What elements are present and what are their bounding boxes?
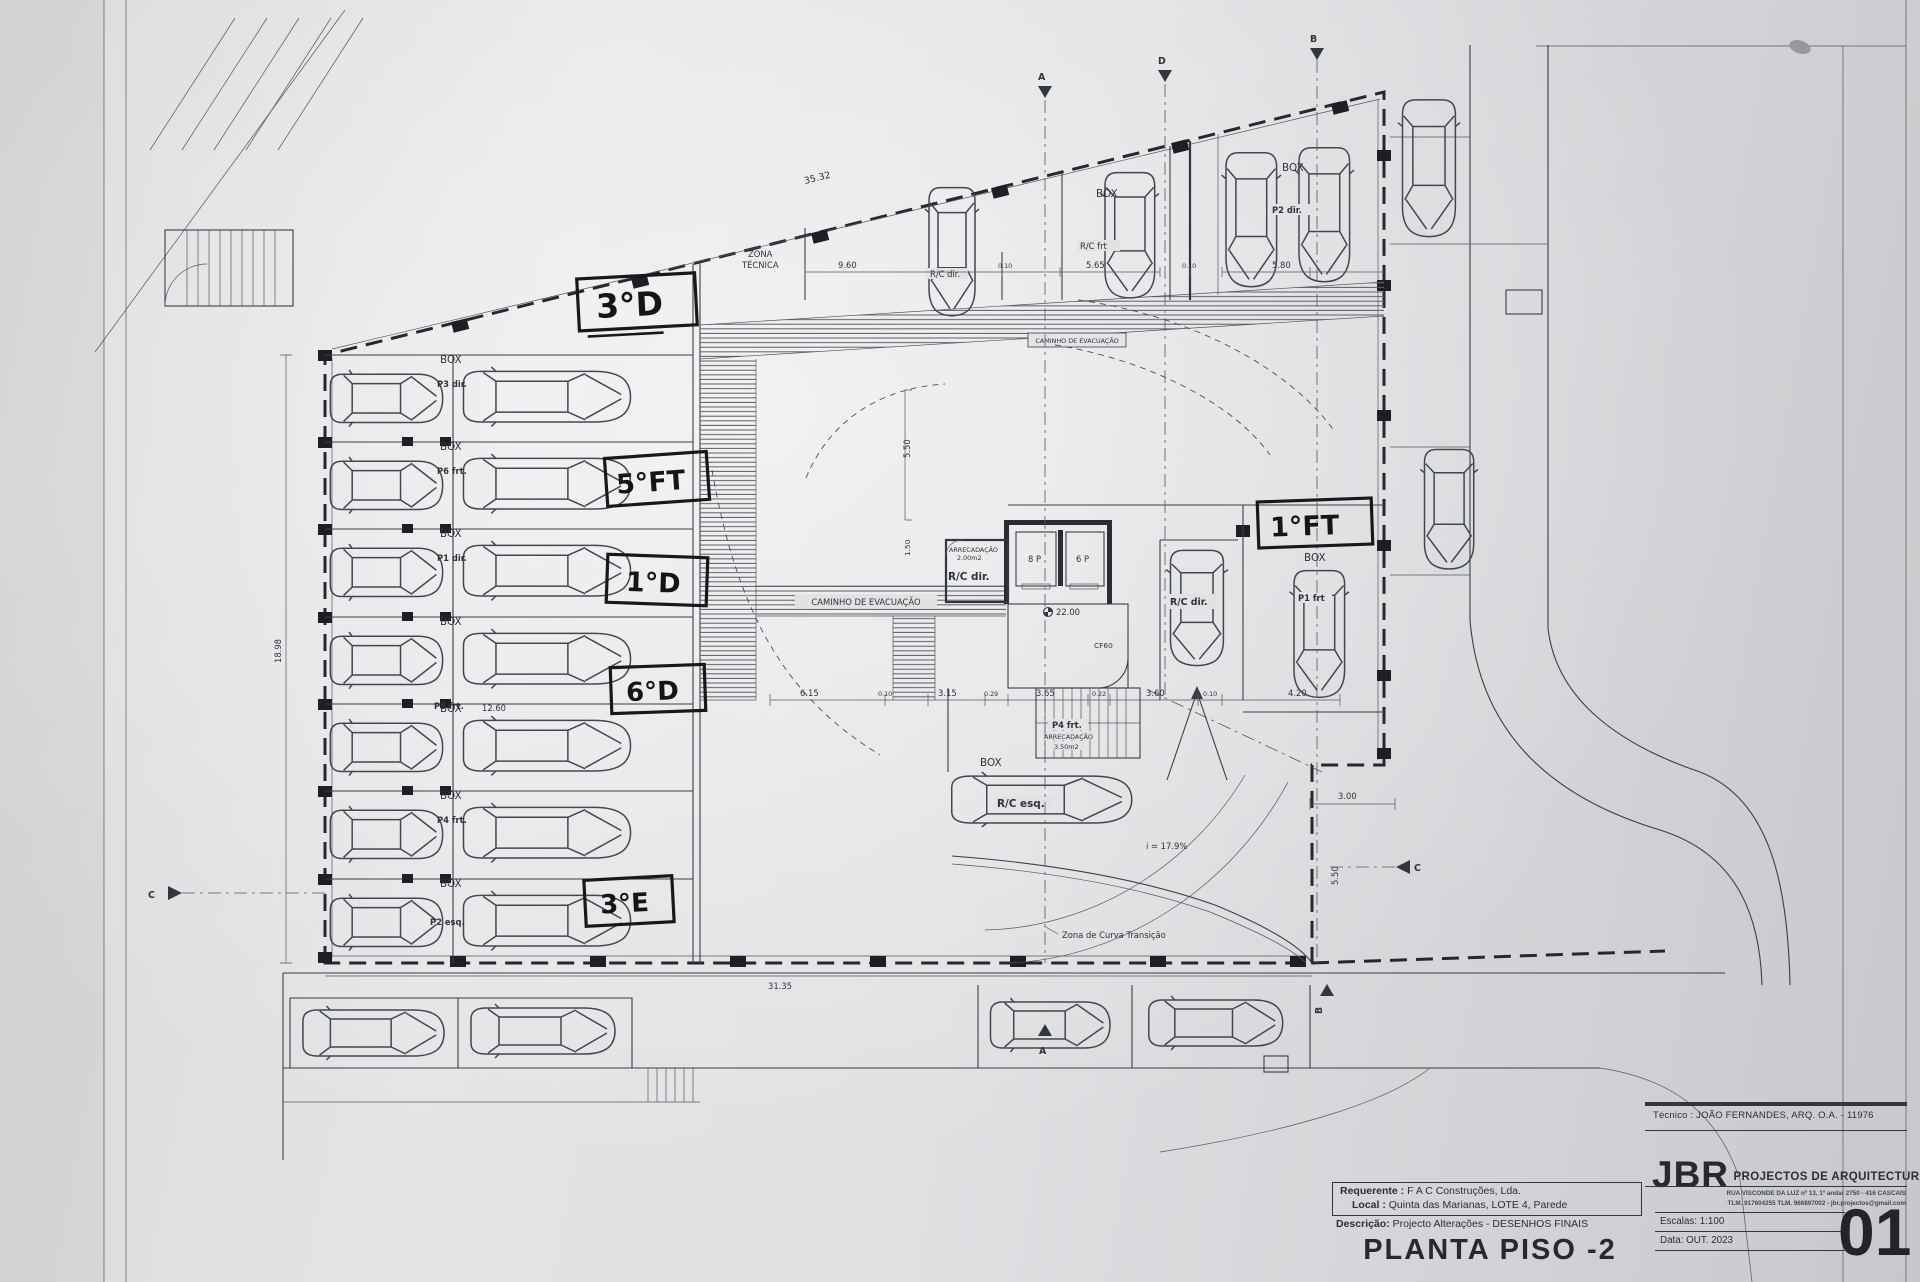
handwritten-5ft: 5°FT (615, 465, 687, 501)
dim-mid-615: 6.15 (800, 688, 819, 698)
descricao-value: Projecto Alterações - DESENHOS FINAIS (1393, 1218, 1588, 1230)
dim-bottom-3135: 31.35 (768, 981, 792, 991)
dim-p2-580: 5.80 (1272, 260, 1291, 270)
level-mark-label: 22.00 (1056, 607, 1080, 617)
rc-esq-box-label: BOX (980, 757, 1002, 769)
dim-mid-010a: 0.10 (878, 690, 892, 698)
car-row3-left (330, 544, 442, 601)
dim-top-550: 5.50 (902, 439, 912, 458)
descricao-label: Descrição: (1336, 1218, 1390, 1230)
rc-frt-box-label: BOX (1096, 188, 1118, 200)
section-c-right: C (1414, 863, 1421, 874)
section-b-top: B (1310, 34, 1317, 45)
arrecadacao-2-label: ARRECADAÇÃO (1044, 732, 1093, 741)
car-p1-frt (1290, 571, 1349, 698)
sheet-number: 01 (1838, 1194, 1911, 1270)
row1-box-label: BOX (440, 354, 462, 366)
dim-p2-010: 0.10 (1182, 262, 1196, 270)
dim-rcfrt-565: 5.65 (1086, 260, 1105, 270)
drawing-title: PLANTA PISO -2 (1340, 1234, 1640, 1267)
section-a-bottom: A (1039, 1046, 1047, 1057)
dim-mid-029: 0.29 (984, 690, 998, 698)
tecnico-text: Técnico : JOÃO FERNANDES, ARQ. O.A. - 11… (1653, 1110, 1874, 1121)
row7-box-label: BOX (440, 878, 462, 890)
dim-mid-315: 3.15 (938, 688, 957, 698)
dim-mid-360: 3.60 (1146, 688, 1165, 698)
dim-top-960: 9.60 (838, 260, 857, 270)
row4-box-label: BOX (440, 616, 462, 628)
dim-left-height: 18.98 (273, 639, 283, 663)
tecnico-bar: Técnico : JOÃO FERNANDES, ARQ. O.A. - 11… (1645, 1098, 1907, 1138)
p2-box-label: BOX (1282, 162, 1304, 174)
photographed-drawing-sheet: BOX P3 dir. BOX P6 frt. BOX P1 dir. BOX … (0, 0, 1920, 1282)
car-street-bl-2 (471, 1004, 615, 1058)
handwritten-1d: 1°D (625, 567, 681, 600)
requerente-value: F A C Construções, Lda. (1407, 1185, 1521, 1197)
local-value: Quinta das Marianas, LOTE 4, Parede (1389, 1199, 1568, 1211)
boundary-pillars (318, 100, 1391, 967)
car-row7-left (330, 894, 442, 951)
p1-frt-label: P1 frt (1298, 593, 1325, 603)
caminho-evacuacao-label-mid: CAMINHO DE EVACUAÇÃO (811, 597, 921, 607)
row6-box-label: BOX (440, 790, 462, 802)
car-row6-left (330, 806, 442, 863)
curva-transicao-label: Zona de Curva Transição (1062, 930, 1166, 940)
arrecadacao-1-label: ARRECADAÇÃO (949, 545, 998, 554)
car-street-br-2 (1149, 996, 1283, 1050)
binder-hole-mark (1788, 37, 1813, 56)
p4-frt-label: P4 frt. (1052, 720, 1082, 730)
row2-box-label: BOX (440, 441, 462, 453)
handwritten-3e: 3°E (599, 888, 649, 921)
evacuation-ramp: CAMINHO DE EVACUAÇÃO CAMINHO DE EVACUAÇÃ… (700, 282, 1384, 700)
left-parking-rows: BOX P3 dir. BOX P6 frt. BOX P1 dir. BOX … (325, 262, 700, 963)
escalas-label: Escalas: (1660, 1216, 1697, 1227)
row1-stall-label: P3 dir. (437, 379, 467, 389)
top-parking-bays: ZONA TÉCNICA R/C dir. BOX R/C frt BOX P2… (741, 134, 1354, 316)
section-markers: A D B A B C C (148, 34, 1421, 1057)
dim-12-60: 12.60 (482, 703, 506, 713)
door-cf60-label: CF60 (1094, 641, 1113, 650)
elevator-right-label: 6 P (1076, 554, 1089, 564)
building-core: 8 P 6 P ARRECADAÇÃO 2.00m2 R/C dir. 22.0… (905, 390, 1384, 758)
rc-dir-top-label: R/C dir. (930, 269, 960, 279)
slope-label: i = 17.9% (1146, 841, 1187, 851)
firm-logo: JBR (1652, 1154, 1729, 1195)
title-block: Requerente : F A C Construções, Lda. Loc… (1310, 1152, 1908, 1282)
garage-boundary (325, 92, 1665, 963)
rc-frt-label: R/C frt (1080, 241, 1108, 251)
row2-stall-label: P6 frt. (437, 466, 467, 476)
zona-tecnica-label-2: TÉCNICA (741, 259, 779, 270)
car-row5-main (463, 716, 630, 775)
p1-frt-box-label: BOX (1304, 552, 1326, 564)
car-row1-left (330, 370, 442, 427)
firm-name: PROJECTOS DE ARQUITECTURA (1733, 1171, 1920, 1183)
car-row4-main (463, 629, 630, 688)
dim-right-300: 3.00 (1338, 791, 1357, 801)
zona-tecnica-label-1: ZONA (748, 249, 773, 259)
dim-right-550: 5.50 (1330, 866, 1340, 885)
requerente-label: Requerente : (1340, 1185, 1404, 1197)
car-row1-main (463, 367, 630, 426)
car-row5-left (330, 719, 442, 776)
outside-stair-block (165, 230, 293, 306)
data-value: OUT. 2023 (1686, 1235, 1733, 1246)
section-b-bottom: B (1314, 1007, 1325, 1014)
topleft-terrain-lines (95, 10, 363, 352)
dim-top-slant: 35.32 (803, 170, 832, 187)
rc-dir-mid-label: R/C dir. (1170, 597, 1208, 608)
car-street-rm (1420, 449, 1478, 569)
section-d-top: D (1158, 56, 1166, 67)
bottom-street (283, 973, 1725, 1160)
dim-core-150: 1.50 (903, 539, 912, 556)
section-c-left: C (148, 890, 155, 901)
right-street (1390, 45, 1790, 1282)
arrecadacao-1-area: 2.00m2 (957, 554, 982, 562)
row3-stall-label: P1 dir. (437, 553, 467, 563)
car-street-br-1 (990, 998, 1110, 1052)
dim-mid-010b: 0.10 (1203, 690, 1217, 698)
floor-plan-drawing: BOX P3 dir. BOX P6 frt. BOX P1 dir. BOX … (0, 0, 1920, 1282)
handwritten-6d: 6°D (626, 676, 680, 708)
escalas-value: 1:100 (1700, 1216, 1725, 1227)
car-row4-left (330, 632, 442, 689)
car-street-bl-1 (303, 1006, 444, 1060)
p2-dir-label: P2 dir. (1272, 205, 1302, 215)
arrecadacao-2-area: 3.50m2 (1054, 743, 1079, 751)
row3-box-label: BOX (440, 528, 462, 540)
caminho-evacuacao-label-top: CAMINHO DE EVACUAÇÃO (1035, 336, 1118, 345)
handwritten-3d: 3°D (595, 284, 664, 326)
elevator-left-label: 8 P (1028, 554, 1041, 564)
car-street-rt (1398, 100, 1460, 237)
car-row2-left (330, 457, 442, 514)
core-rc-dir-label: R/C dir. (948, 571, 990, 583)
dim-top-010: 0.10 (998, 262, 1012, 270)
local-label: Local : (1352, 1199, 1386, 1211)
row6-stall-label: P4 frt. (437, 815, 467, 825)
data-label: Data: (1660, 1235, 1683, 1246)
row7-stall-label: P2 esq. (430, 917, 465, 927)
rc-esq-label: R/C esq. (997, 798, 1045, 810)
car-rc-dir-top (925, 188, 979, 316)
handwritten-1ft: 1°FT (1270, 510, 1341, 543)
row5-box-label: BOX (440, 703, 462, 715)
section-a-top: A (1038, 72, 1046, 83)
car-row6-main (463, 803, 630, 862)
